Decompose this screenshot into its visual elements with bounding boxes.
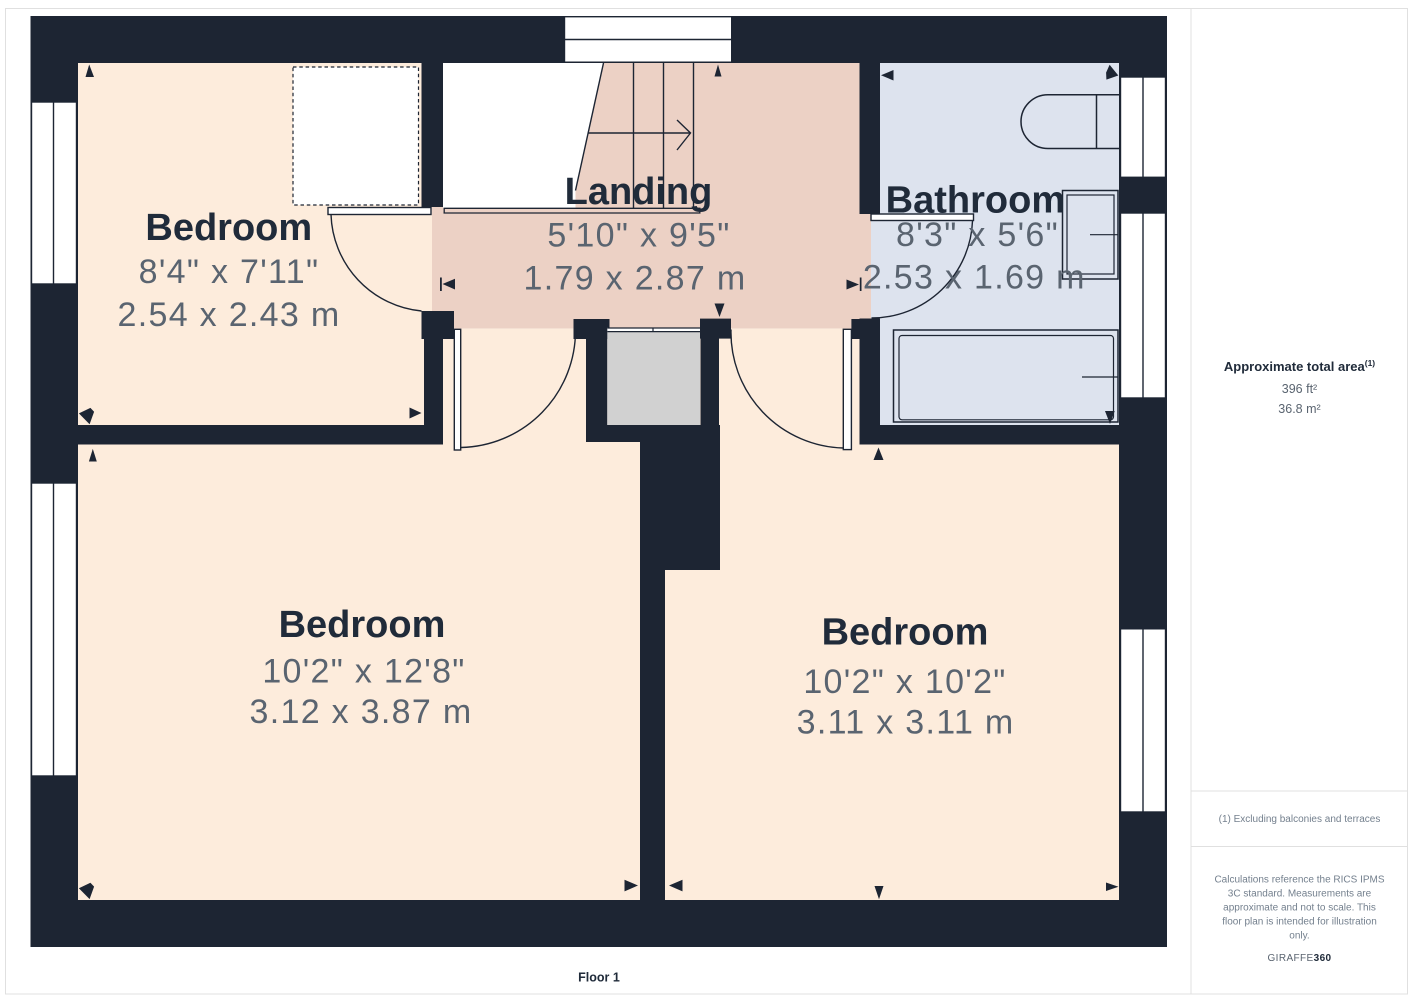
svg-text:36.8 m²: 36.8 m² xyxy=(1278,402,1320,416)
svg-text:Floor 1: Floor 1 xyxy=(578,970,620,984)
svg-text:10'2" x 12'8": 10'2" x 12'8" xyxy=(262,653,465,691)
svg-text:1.79 x 2.87 m: 1.79 x 2.87 m xyxy=(524,260,747,298)
svg-text:GIRAFFE360: GIRAFFE360 xyxy=(1267,953,1331,964)
svg-text:Bedroom: Bedroom xyxy=(279,604,446,646)
svg-text:3.11 x 3.11 m: 3.11 x 3.11 m xyxy=(797,704,1015,742)
svg-text:396 ft²: 396 ft² xyxy=(1282,382,1317,396)
svg-text:2.54 x 2.43 m: 2.54 x 2.43 m xyxy=(118,296,341,334)
svg-text:Calculations reference the RIC: Calculations reference the RICS IPMS xyxy=(1214,875,1384,886)
svg-text:2.53 x 1.69 m: 2.53 x 1.69 m xyxy=(863,259,1086,297)
svg-text:8'4" x 7'11": 8'4" x 7'11" xyxy=(139,253,320,291)
svg-text:10'2" x 10'2": 10'2" x 10'2" xyxy=(803,663,1006,701)
svg-text:approximate and not to scale.: approximate and not to scale. This xyxy=(1223,903,1376,914)
svg-text:only.: only. xyxy=(1289,931,1309,942)
svg-text:(1) Excluding balconies and te: (1) Excluding balconies and terraces xyxy=(1219,814,1381,825)
svg-text:8'3" x 5'6": 8'3" x 5'6" xyxy=(896,216,1059,254)
svg-text:5'10" x 9'5": 5'10" x 9'5" xyxy=(547,217,730,255)
svg-text:Landing: Landing xyxy=(565,171,713,213)
svg-text:floor plan is intended for ill: floor plan is intended for illustration xyxy=(1222,917,1377,928)
svg-text:Approximate total area(1): Approximate total area(1) xyxy=(1224,358,1375,374)
svg-text:Bedroom: Bedroom xyxy=(822,612,989,654)
svg-text:3.12 x 3.87 m: 3.12 x 3.87 m xyxy=(250,693,473,731)
svg-text:Bedroom: Bedroom xyxy=(145,207,312,249)
svg-text:3C standard. Measurements are: 3C standard. Measurements are xyxy=(1228,889,1372,900)
